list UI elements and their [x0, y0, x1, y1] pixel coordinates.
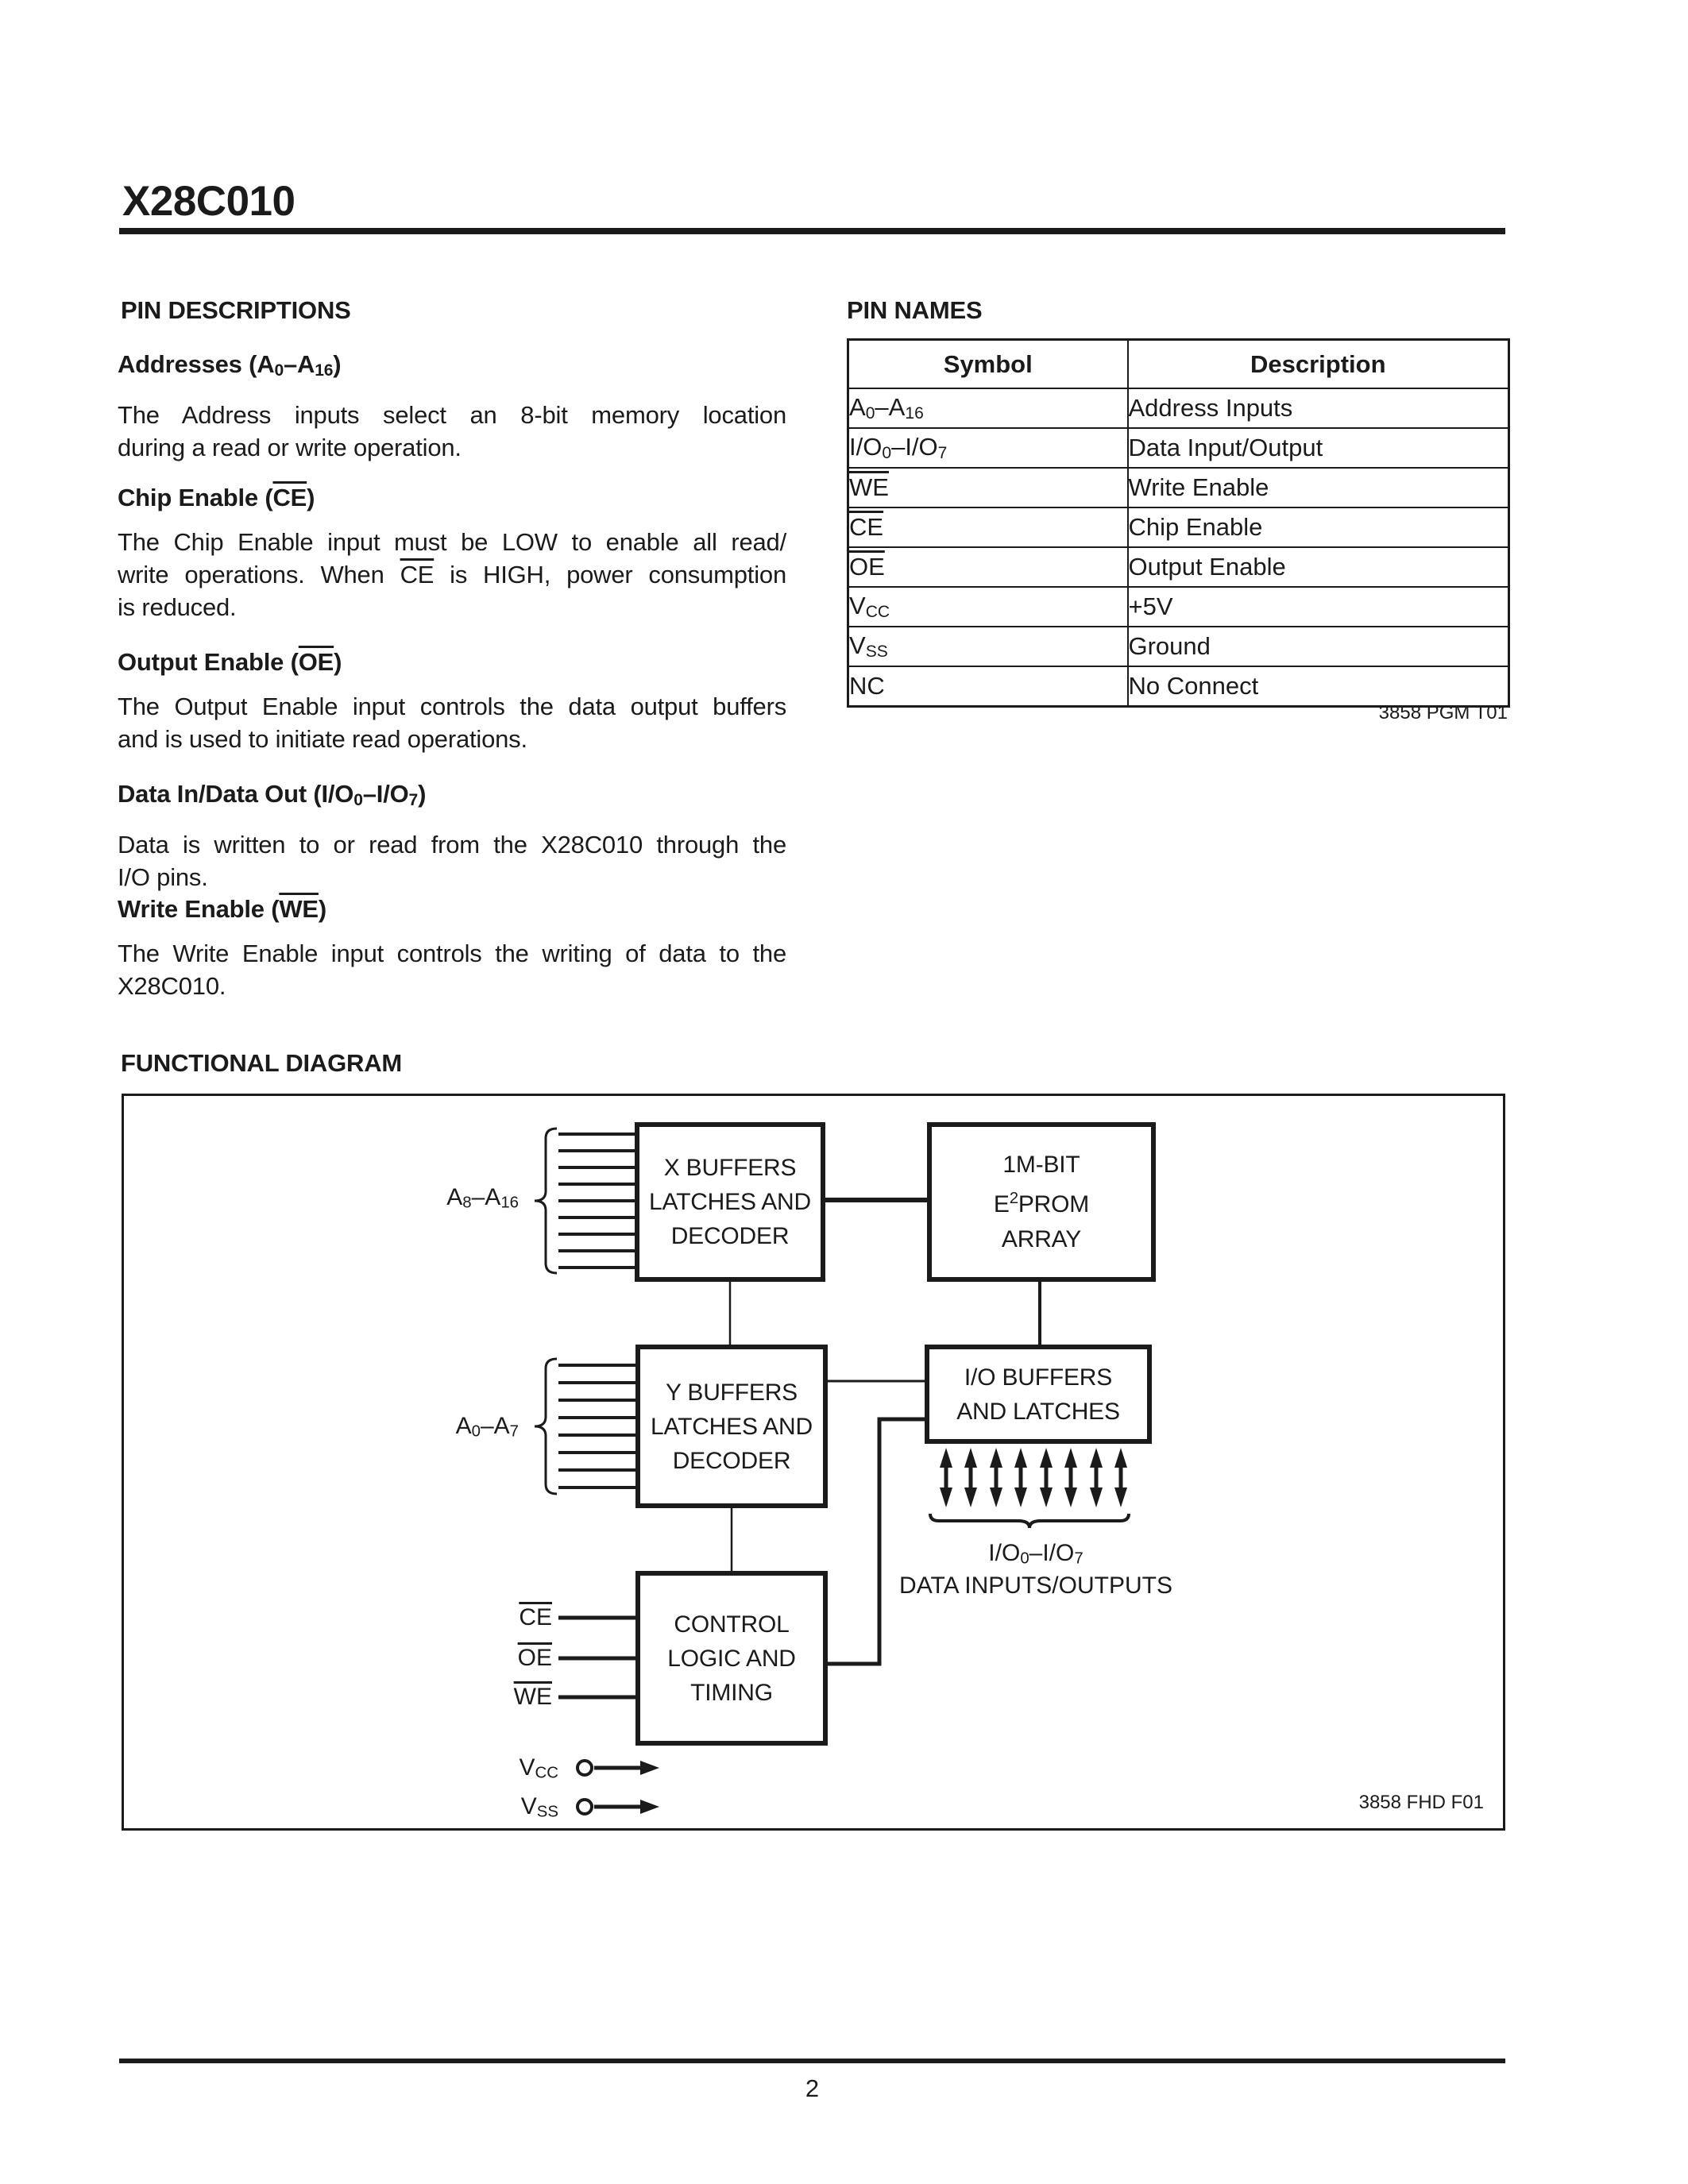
pin-names-heading: PIN NAMES: [847, 295, 982, 326]
section-body: The Write Enable input controls the writ…: [118, 937, 786, 1002]
io-data-arrows: [940, 1448, 1127, 1507]
table-figure-code: 3858 PGM T01: [1190, 702, 1508, 724]
control-input-lines: [558, 1618, 635, 1697]
block-x-buffers: X BUFFERSLATCHES ANDDECODER: [635, 1122, 825, 1282]
cell-description: No Connect: [1128, 666, 1509, 707]
title-rule: [119, 228, 1505, 234]
a8-a16-label: A8–A16: [394, 1182, 519, 1219]
vss-pin: [577, 1800, 659, 1814]
cell-symbol: OE: [848, 547, 1128, 587]
cell-symbol: A0–A16: [848, 388, 1128, 428]
a8-a16-brace: [535, 1129, 557, 1273]
page-title: X28C010: [122, 179, 295, 224]
oe-label: OE: [458, 1642, 552, 1674]
table-row: WEWrite Enable: [848, 468, 1509, 507]
page-number: 2: [119, 2074, 1505, 2103]
functional-diagram-heading: FUNCTIONAL DIAGRAM: [121, 1048, 402, 1078]
block-y-buffers: Y BUFFERSLATCHES ANDDECODER: [635, 1345, 828, 1508]
section-data-in-out: Data In/Data Out (I/O0–I/O7) Data is wri…: [118, 778, 786, 893]
table-row: A0–A16Address Inputs: [848, 388, 1509, 428]
table-row: OEOutput Enable: [848, 547, 1509, 587]
table-row: NCNo Connect: [848, 666, 1509, 707]
footer-rule: [119, 2059, 1505, 2063]
vss-label: VSS: [458, 1791, 558, 1828]
col-header-description: Description: [1128, 340, 1509, 389]
table-row: CEChip Enable: [848, 507, 1509, 547]
cell-description: Output Enable: [1128, 547, 1509, 587]
section-output-enable: Output Enable (OE) The Output Enable inp…: [118, 646, 786, 755]
functional-diagram: X BUFFERSLATCHES ANDDECODER 1M-BITE2PROM…: [122, 1094, 1505, 1831]
a8-a16-input-lines: [558, 1134, 635, 1268]
io-brace: [930, 1514, 1129, 1528]
datasheet-page: X28C010 PIN DESCRIPTIONS PIN NAMES Addre…: [0, 0, 1688, 2184]
cell-description: Write Enable: [1128, 468, 1509, 507]
section-heading: Output Enable (OE): [118, 646, 786, 678]
block-control-logic: CONTROLLOGIC ANDTIMING: [635, 1571, 828, 1746]
section-heading: Write Enable (WE): [118, 893, 786, 925]
pin-names-table: Symbol Description A0–A16Address Inputs …: [847, 338, 1510, 708]
cell-symbol: VCC: [848, 587, 1128, 627]
pin-descriptions-heading: PIN DESCRIPTIONS: [121, 295, 351, 326]
cell-symbol: WE: [848, 468, 1128, 507]
a0-a7-brace: [535, 1359, 557, 1494]
block-io-buffers: I/O BUFFERSAND LATCHES: [925, 1345, 1152, 1444]
a0-a7-label: A0–A7: [394, 1410, 519, 1448]
io-range-label: I/O0–I/O7: [877, 1538, 1195, 1575]
cell-description: +5V: [1128, 587, 1509, 627]
section-body: The Address inputs select an 8-bit memor…: [118, 399, 786, 464]
block-eeprom-array: 1M-BITE2PROMARRAY: [927, 1122, 1156, 1282]
diagram-figure-code: 3858 FHD F01: [1246, 1792, 1484, 1814]
ce-label: CE: [458, 1602, 552, 1634]
cell-symbol: CE: [848, 507, 1128, 547]
col-header-symbol: Symbol: [848, 340, 1128, 389]
we-label: WE: [458, 1681, 552, 1713]
cell-symbol: NC: [848, 666, 1128, 707]
section-heading: Addresses (A0–A16): [118, 348, 786, 387]
a0-a7-input-lines: [558, 1365, 635, 1488]
cell-symbol: VSS: [848, 627, 1128, 666]
cell-description: Data Input/Output: [1128, 428, 1509, 468]
section-heading: Chip Enable (CE): [118, 481, 786, 514]
section-body: Data is written to or read from the X28C…: [118, 828, 786, 893]
section-body: The Chip Enable input must be LOW to ena…: [118, 526, 786, 623]
cell-symbol: I/O0–I/O7: [848, 428, 1128, 468]
section-write-enable: Write Enable (WE) The Write Enable input…: [118, 893, 786, 1002]
table-row: I/O0–I/O7Data Input/Output: [848, 428, 1509, 468]
cell-description: Chip Enable: [1128, 507, 1509, 547]
table-row: VCC+5V: [848, 587, 1509, 627]
vcc-label: VCC: [458, 1752, 558, 1789]
table-header-row: Symbol Description: [848, 340, 1509, 389]
section-body: The Output Enable input controls the dat…: [118, 690, 786, 755]
cell-description: Ground: [1128, 627, 1509, 666]
io-caption-label: DATA INPUTS/OUTPUTS: [877, 1570, 1195, 1602]
section-heading: Data In/Data Out (I/O0–I/O7): [118, 778, 786, 816]
cell-description: Address Inputs: [1128, 388, 1509, 428]
section-chip-enable: Chip Enable (CE) The Chip Enable input m…: [118, 481, 786, 623]
vcc-pin: [577, 1761, 659, 1775]
table-row: VSSGround: [848, 627, 1509, 666]
section-addresses: Addresses (A0–A16) The Address inputs se…: [118, 348, 786, 464]
